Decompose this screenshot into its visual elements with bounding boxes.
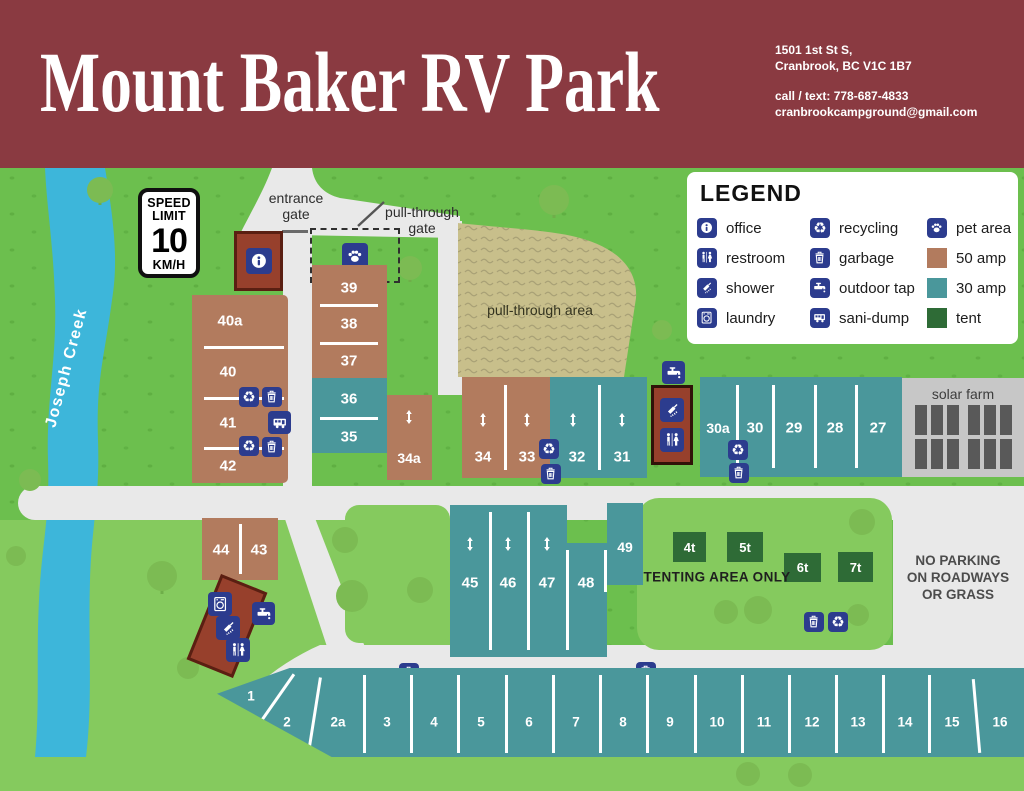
phone-line: call / text: 778-687-4833	[775, 88, 977, 104]
solar-farm-label: solar farm	[902, 386, 1024, 402]
site-label: 46	[500, 575, 517, 592]
site-divider	[646, 675, 649, 753]
legend-item: sani-dump	[810, 308, 909, 328]
site-divider	[882, 675, 885, 753]
solar-panel-icon	[947, 405, 959, 435]
site-label: 8	[619, 715, 627, 730]
site-label: 45	[462, 575, 479, 592]
legend-item: office	[697, 218, 762, 238]
sani-dump-icon	[810, 308, 830, 328]
rv-park-map-page: Mount Baker RV Park 1501 1st St S, Cranb…	[0, 0, 1024, 791]
site-label: 11	[757, 715, 771, 730]
site-label: 13	[850, 715, 865, 730]
site-block-bottom-row: 1 2 2a 3 4 5 6 7 8 9 10 11 12 13 14 15 1…	[217, 668, 1024, 757]
speed-sign-value: 10	[142, 223, 196, 259]
site-label: 40	[220, 364, 237, 381]
outdoor-tap-icon	[662, 361, 685, 384]
site-divider	[505, 675, 508, 753]
site-divider	[972, 679, 981, 753]
site-label: 49	[617, 539, 633, 555]
site-label: 29	[786, 420, 803, 437]
solar-panel-icon	[915, 439, 927, 469]
email-line: cranbrookcampground@gmail.com	[775, 104, 977, 120]
site-divider	[694, 675, 697, 753]
site-label: 12	[804, 715, 819, 730]
solar-panel-icon	[1000, 405, 1012, 435]
speed-limit-sign: SPEED LIMIT 10 KM/H	[138, 188, 200, 278]
site-divider	[457, 675, 460, 753]
entrance-gate-label: entrancegate	[256, 190, 336, 222]
swatch-50amp	[927, 248, 947, 268]
site-divider	[814, 385, 817, 468]
site-divider	[566, 550, 569, 650]
address-line2: Cranbrook, BC V1C 1B7	[775, 58, 977, 74]
solar-panel-icon	[931, 405, 943, 435]
solar-panel-icon	[1000, 439, 1012, 469]
solar-panel-icon	[968, 439, 980, 469]
tent-site: 7t	[838, 552, 873, 582]
header: Mount Baker RV Park 1501 1st St S, Cranb…	[0, 0, 1024, 168]
restroom-icon	[697, 248, 717, 268]
site-label: 1	[247, 689, 255, 704]
site-divider	[772, 385, 775, 468]
garbage-icon	[262, 387, 282, 407]
pull-through-arrow-icon	[500, 529, 516, 559]
legend: LEGEND office restroom shower laundry ♻ …	[687, 172, 1018, 344]
restroom-icon	[660, 428, 684, 452]
no-parking-label: NO PARKINGON ROADWAYSOR GRASS	[893, 552, 1023, 603]
garbage-icon	[804, 612, 824, 632]
restroom-icon	[226, 638, 250, 662]
site-divider	[527, 512, 530, 650]
pull-through-arrow-icon	[462, 529, 478, 559]
legend-title: LEGEND	[700, 180, 802, 207]
site-label: 7	[572, 715, 580, 730]
recycling-icon: ♻	[539, 439, 559, 459]
pull-through-arrow-icon	[614, 405, 630, 435]
site-label: 34	[475, 449, 492, 466]
site-divider	[552, 675, 555, 753]
site-divider	[320, 417, 378, 420]
solar-panel-icon	[968, 405, 980, 435]
solar-panel-icon	[947, 439, 959, 469]
tent-site: 5t	[727, 532, 763, 562]
recycling-icon: ♻	[239, 387, 259, 407]
site-divider	[604, 550, 607, 592]
site-block-48	[567, 543, 607, 657]
site-label: 39	[341, 280, 358, 297]
site-divider	[320, 304, 378, 307]
legend-item: ♻ recycling	[810, 218, 898, 238]
site-label: 37	[341, 353, 358, 370]
outdoor-tap-icon	[252, 602, 275, 625]
site-label: 40a	[217, 313, 242, 330]
legend-item: pet area	[927, 218, 1011, 238]
garbage-icon	[729, 463, 749, 483]
site-divider	[489, 512, 492, 650]
site-label: 32	[569, 449, 586, 466]
laundry-icon	[697, 308, 717, 328]
site-label: 31	[614, 449, 631, 466]
site-label: 36	[341, 391, 358, 408]
speed-sign-unit: KM/H	[142, 259, 196, 272]
site-label: 35	[341, 429, 358, 446]
light-grass-bottom	[0, 757, 1024, 791]
sani-dump-icon	[268, 411, 291, 434]
site-label: 3	[383, 715, 391, 730]
site-divider	[307, 677, 321, 752]
pull-through-arrow-icon	[519, 405, 535, 435]
site-label: 30a	[706, 420, 729, 436]
legend-item: laundry	[697, 308, 775, 328]
pull-through-arrow-icon	[539, 529, 555, 559]
solar-farm: solar farm	[902, 378, 1024, 477]
site-label: 28	[827, 420, 844, 437]
legend-item: shower	[697, 278, 774, 298]
site-divider	[741, 675, 744, 753]
pull-through-arrow-icon	[565, 405, 581, 435]
tenting-area-label: TENTING AREA ONLY	[643, 570, 790, 585]
site-label: 47	[539, 575, 556, 592]
site-label: 44	[213, 542, 230, 559]
site-divider	[204, 346, 284, 349]
pull-through-arrow-icon	[475, 405, 491, 435]
site-label: 6	[525, 715, 533, 730]
park-map: Joseph Creek SPEED LIMIT 10 KM/H entranc…	[0, 168, 1024, 791]
site-label: 15	[944, 715, 959, 730]
site-label: 9	[666, 715, 674, 730]
site-divider	[835, 675, 838, 753]
garbage-icon	[810, 248, 830, 268]
legend-item: restroom	[697, 248, 785, 268]
site-label: 16	[992, 715, 1007, 730]
legend-item: 50 amp	[927, 248, 1006, 268]
site-divider	[598, 385, 601, 470]
site-label: 41	[220, 415, 237, 432]
site-label: 42	[220, 458, 237, 475]
recycling-icon: ♻	[828, 612, 848, 632]
tent-site: 4t	[673, 532, 706, 562]
laundry-icon	[208, 592, 232, 616]
site-label: 43	[251, 542, 268, 559]
site-label: 34a	[397, 450, 420, 466]
address-line1: 1501 1st St S,	[775, 42, 977, 58]
swatch-tent	[927, 308, 947, 328]
site-label: 38	[341, 316, 358, 333]
legend-item: outdoor tap	[810, 278, 915, 298]
site-divider	[928, 675, 931, 753]
recycling-icon: ♻	[239, 436, 259, 456]
site-divider	[599, 675, 602, 753]
garbage-icon	[541, 464, 561, 484]
site-divider	[363, 675, 366, 753]
page-title: Mount Baker RV Park	[40, 34, 659, 130]
pull-through-arrow-icon	[401, 402, 417, 432]
info-icon	[246, 248, 272, 274]
shower-icon	[660, 398, 684, 422]
recycling-icon: ♻	[810, 218, 830, 238]
contact-block: 1501 1st St S, Cranbrook, BC V1C 1B7 cal…	[775, 42, 977, 120]
garbage-icon	[262, 437, 282, 457]
site-divider	[320, 342, 378, 345]
site-divider	[855, 385, 858, 468]
site-label: 2a	[330, 715, 345, 730]
shower-icon	[697, 278, 717, 298]
swatch-30amp	[927, 278, 947, 298]
pull-through-area-label: pull-through area	[487, 302, 593, 318]
site-label: 2	[283, 715, 291, 730]
legend-item: tent	[927, 308, 981, 328]
shower-icon	[216, 616, 240, 640]
restroom-building-east	[651, 385, 693, 465]
solar-panel-icon	[984, 439, 996, 469]
office-building	[234, 231, 283, 291]
solar-panel-icon	[915, 405, 927, 435]
site-label: 10	[709, 715, 724, 730]
entrance-gate-line	[282, 230, 308, 233]
paw-icon	[927, 218, 947, 238]
site-label: 4	[430, 715, 438, 730]
site-divider	[239, 524, 242, 574]
solar-panel-icon	[931, 439, 943, 469]
outdoor-tap-icon	[810, 278, 830, 298]
solar-panel-icon	[984, 405, 996, 435]
site-divider	[410, 675, 413, 753]
recycling-icon: ♻	[728, 440, 748, 460]
legend-item: 30 amp	[927, 278, 1006, 298]
grass-island-west	[345, 505, 450, 643]
info-icon	[697, 218, 717, 238]
site-divider	[504, 385, 507, 470]
site-label: 33	[519, 449, 536, 466]
site-label: 14	[897, 715, 912, 730]
site-divider	[788, 675, 791, 753]
site-label: 5	[477, 715, 485, 730]
site-label: 48	[578, 575, 595, 592]
legend-item: garbage	[810, 248, 894, 268]
site-label: 30	[747, 420, 764, 437]
site-label: 27	[870, 420, 887, 437]
pull-through-texture	[458, 223, 636, 377]
